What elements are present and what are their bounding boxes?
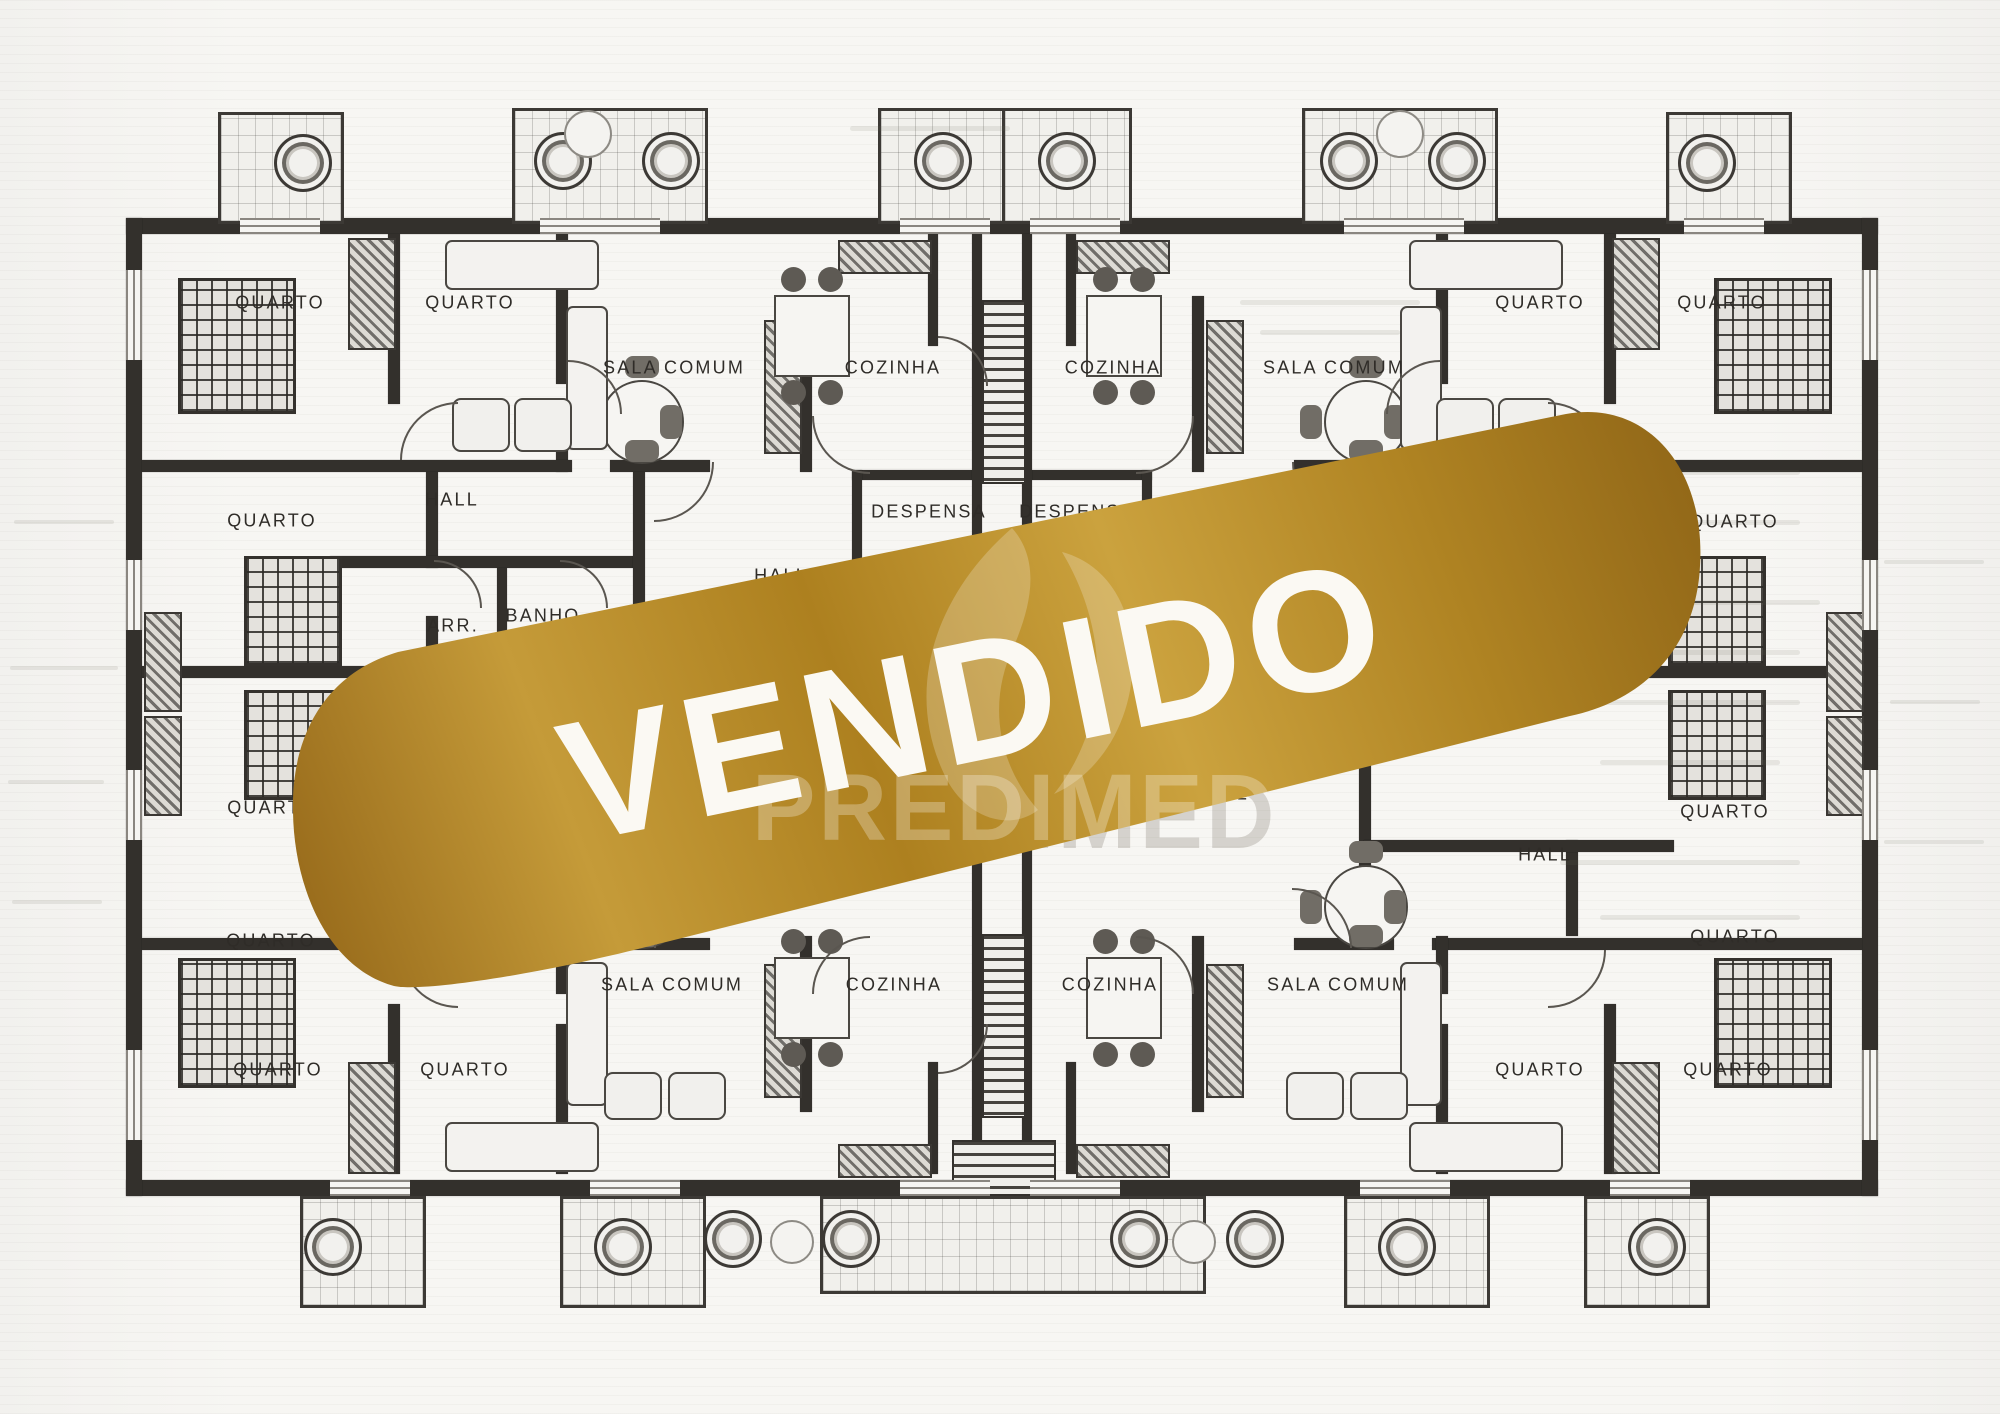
sold-banner: PREDIMED VENDIDO [0, 0, 2000, 1414]
floorplan-canvas: QUARTOQUARTOSALA COMUMCOZINHACOZINHASALA… [0, 0, 2000, 1414]
